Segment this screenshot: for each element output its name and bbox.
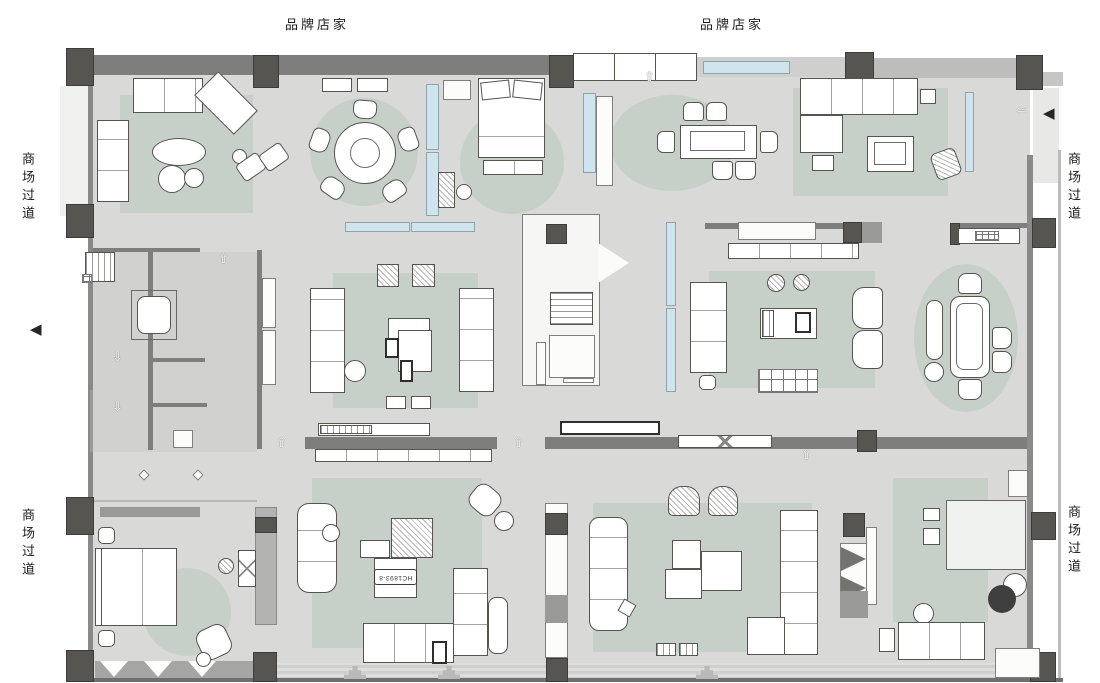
stool	[924, 362, 944, 382]
coffee-table-inner	[874, 142, 906, 165]
column	[66, 48, 94, 86]
stool	[196, 652, 211, 667]
pillow	[322, 524, 340, 542]
dining-chair	[706, 102, 727, 121]
right-ramp	[1033, 88, 1059, 183]
console-shelving	[320, 425, 372, 434]
service-thin-wall	[90, 390, 93, 452]
bottom-wall	[88, 678, 1063, 682]
sideboard-grid	[975, 231, 999, 241]
up-arrow-icon: ⇧	[644, 70, 655, 83]
bench	[926, 300, 943, 360]
chaise	[488, 597, 508, 654]
down-arrow-icon: ⇩	[112, 350, 123, 363]
column	[253, 652, 277, 682]
zigzag-shelf-chevron	[841, 547, 866, 571]
up-arrow-icon: ⇧	[513, 436, 524, 449]
media-console	[560, 421, 660, 435]
display-strip	[583, 93, 596, 173]
storage-box	[173, 430, 193, 448]
accent-chair	[377, 264, 399, 287]
headboard	[95, 548, 102, 626]
display-window-blue	[703, 61, 790, 74]
coffee-table	[672, 540, 701, 569]
coffee-table	[665, 569, 702, 599]
mid-divider-a	[305, 437, 497, 449]
sofa	[459, 288, 494, 392]
bed-bench	[483, 160, 543, 175]
left-corridor-strip	[60, 86, 88, 216]
loveseat	[97, 120, 129, 202]
display-tower-dark	[545, 513, 568, 535]
column	[253, 55, 279, 88]
dark-accent-circle	[988, 585, 1016, 613]
pillow	[512, 80, 543, 101]
plant	[793, 274, 810, 291]
coffee-table	[701, 551, 742, 591]
armchair	[137, 296, 171, 334]
mall-corridor-label-right-bottom: 商场过道	[1064, 505, 1083, 577]
sofa	[898, 622, 985, 660]
brand-store-label-left: 品牌店家	[285, 14, 349, 33]
crossed-cabinet	[238, 550, 256, 587]
product-code-label: HC1893-8	[375, 570, 416, 584]
display-strip	[965, 92, 974, 172]
accent-chair	[412, 264, 435, 287]
kiosk-dark-unit	[546, 224, 567, 244]
kiosk-counter	[549, 335, 595, 378]
dining-chair	[352, 99, 377, 120]
bed	[946, 500, 1026, 570]
display-strip	[666, 222, 676, 306]
column	[66, 497, 94, 535]
sectional-sofa	[133, 78, 203, 113]
left-arrow-icon: ⇦	[1016, 104, 1026, 116]
display-strip	[411, 222, 475, 232]
chaise	[800, 115, 843, 153]
ottoman	[344, 360, 366, 382]
column	[549, 55, 574, 88]
cabinet-row	[315, 449, 492, 462]
bedroom-edge-line	[93, 500, 257, 502]
column	[1032, 218, 1056, 248]
sectional-corner	[747, 617, 785, 655]
round-stool	[456, 184, 472, 200]
bed-line	[142, 549, 143, 625]
zigzag-triangle	[100, 661, 128, 677]
display-tower-dark	[255, 517, 277, 533]
accent-rug	[391, 518, 433, 558]
brand-store-label-right: 品牌店家	[700, 14, 764, 33]
wardrobe	[100, 507, 200, 517]
sofa	[589, 517, 628, 631]
left-wall	[88, 75, 93, 662]
service-wall-v	[148, 250, 153, 450]
display-tower-gray	[545, 595, 568, 623]
ottoman	[656, 643, 676, 656]
display-strip	[345, 222, 410, 232]
ottoman	[411, 396, 431, 409]
column	[546, 658, 568, 682]
entrance-arrow-left-icon: ◀	[30, 322, 42, 337]
ottoman	[679, 643, 698, 656]
white-box	[443, 80, 471, 100]
round-table	[913, 603, 934, 624]
sofa	[297, 503, 337, 593]
dining-chair	[992, 327, 1012, 349]
ottoman	[699, 375, 716, 390]
service-stub1	[153, 358, 205, 362]
round-table	[158, 165, 186, 193]
direction-triangle	[598, 243, 629, 283]
armchair	[852, 287, 883, 329]
mid-divider-c	[875, 437, 1027, 449]
display-strip	[426, 84, 439, 150]
zigzag-triangle	[144, 661, 172, 677]
kiosk-steps	[550, 292, 593, 325]
entrance-arrow-right-icon: ◀	[1043, 106, 1055, 121]
armchair	[852, 330, 883, 369]
plant	[767, 274, 785, 292]
dining-chair	[958, 273, 982, 294]
dining-chair	[657, 131, 675, 153]
dining-chair	[712, 161, 733, 180]
sofa	[310, 288, 345, 393]
wall-panel	[1008, 470, 1028, 497]
table-center	[350, 138, 380, 168]
display-strip	[666, 308, 676, 392]
long-table-inner	[956, 303, 983, 370]
side-table	[812, 155, 834, 171]
marble-console	[438, 172, 455, 208]
column	[66, 650, 94, 682]
wall-cabinet	[357, 78, 388, 92]
grid-shelf	[758, 369, 818, 393]
column	[843, 222, 862, 243]
mall-corridor-label-left-bottom: 商场过道	[18, 508, 37, 580]
dining-chair	[992, 351, 1012, 373]
corner-unit	[879, 628, 895, 652]
mall-corridor-label-right-top: 商场过道	[1064, 152, 1083, 224]
oval-coffee-table	[152, 138, 206, 166]
top-wall	[75, 55, 563, 75]
tray-table	[385, 338, 399, 358]
bed-blanket-line	[479, 136, 544, 137]
mall-corridor-label-left-top: 商场过道	[18, 152, 37, 224]
side-table	[218, 558, 234, 574]
up-arrow-icon: ⇧	[276, 436, 287, 449]
dining-chair	[958, 379, 982, 400]
top-wall-band2	[874, 58, 1016, 78]
nightstand	[98, 630, 115, 647]
accent-chair	[708, 486, 738, 516]
up-arrow-icon: ⇧	[218, 252, 229, 265]
sofa	[690, 282, 727, 373]
kiosk-shelf	[563, 378, 594, 383]
accent-chair	[668, 486, 700, 516]
fitting-box	[995, 648, 1040, 678]
side-table	[923, 528, 940, 545]
crossed-cabinet	[678, 435, 772, 448]
wall-cabinet	[322, 78, 352, 92]
column	[1031, 512, 1056, 540]
tray-table	[400, 360, 413, 382]
sofa	[453, 568, 488, 656]
stairs-hatch	[82, 274, 92, 283]
column-half	[862, 222, 882, 243]
shelf-box	[262, 278, 276, 328]
round-table	[184, 168, 204, 188]
gray-block	[840, 591, 868, 618]
daybed-cushion	[762, 310, 774, 337]
dining-chair	[760, 131, 778, 153]
side-table	[923, 508, 940, 521]
bed	[95, 548, 177, 626]
kiosk-bar	[536, 342, 546, 385]
top-right-wall-step	[1043, 72, 1063, 86]
stool	[494, 511, 514, 531]
media-board	[738, 222, 816, 240]
column	[1016, 55, 1043, 90]
shelf-box	[262, 330, 276, 385]
side-table	[360, 540, 390, 558]
down-arrow-icon: ⇩	[112, 400, 123, 413]
service-stub2	[153, 403, 207, 407]
table-inlay	[690, 131, 745, 151]
tv-panel	[432, 641, 447, 664]
column	[857, 430, 877, 452]
dining-chair	[735, 161, 756, 180]
display-panel	[596, 96, 613, 186]
daybed-tray	[795, 312, 811, 333]
column	[843, 513, 865, 537]
corner-unit	[920, 89, 936, 104]
media-console	[728, 243, 859, 259]
right-outer-line	[1058, 150, 1061, 682]
up-arrow-icon: ⇧	[801, 448, 812, 461]
sofa	[800, 78, 918, 115]
pillow	[480, 80, 511, 101]
product-label-plate: HC1893-8	[374, 569, 417, 585]
floor-plan: HC1893-8 ⇩ ⇩ ⇧ ⇧ ⇧ ⇧ ⇧ ⇦ ◀ ◀	[0, 0, 1100, 683]
ottoman	[386, 396, 406, 409]
top-wall-cabinets	[573, 53, 697, 81]
nightstand	[98, 527, 115, 544]
dining-chair	[683, 102, 704, 121]
column	[66, 204, 94, 238]
sectional-sofa	[780, 510, 818, 655]
